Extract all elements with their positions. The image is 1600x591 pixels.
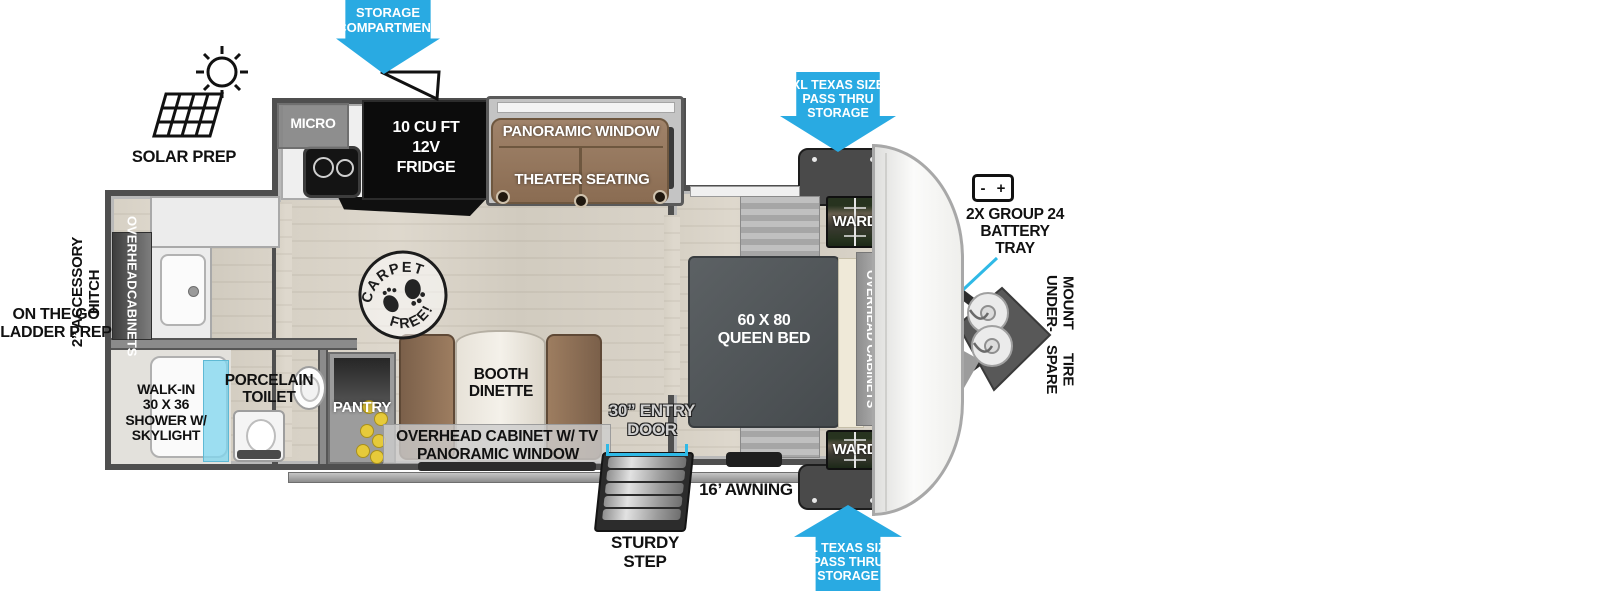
compartment-door-icon bbox=[378, 68, 442, 104]
pass-thru-top-label: XL TEXAS SIZE PASS THRU STORAGE bbox=[770, 78, 906, 120]
front-cap bbox=[872, 144, 964, 516]
ladder-line2: LADDER PREP bbox=[0, 324, 112, 342]
battery-line1: 2X GROUP 24 bbox=[952, 206, 1078, 223]
sink-faucet-icon bbox=[188, 286, 199, 297]
dinette-line1: BOOTH bbox=[448, 366, 554, 383]
fridge-label: 10 CU FT 12V FRIDGE bbox=[362, 118, 490, 178]
dinette-line2: DINETTE bbox=[448, 383, 554, 400]
sturdy-line1: STURDY bbox=[570, 534, 720, 553]
dinette-overhead-label: OVERHEAD CABINET W/ TV bbox=[380, 428, 614, 445]
pantry-can bbox=[370, 450, 384, 464]
spare-tire-line2: SPARE TIRE bbox=[1043, 340, 1076, 398]
step-tread bbox=[606, 470, 685, 481]
screw-icon bbox=[812, 157, 817, 162]
bath-vanity bbox=[233, 410, 285, 462]
entry-steps bbox=[594, 452, 694, 532]
spare-tire-line1: UNDER-MOUNT bbox=[1043, 266, 1076, 340]
battery-tray-label: 2X GROUP 24 BATTERY TRAY bbox=[952, 206, 1078, 257]
fridge-line1: 10 CU FT bbox=[362, 118, 490, 138]
spare-tire-label: UNDER-MOUNT SPARE TIRE bbox=[1036, 266, 1082, 398]
burner-icon bbox=[336, 159, 354, 177]
battery-icon: - + bbox=[972, 174, 1014, 202]
battery-minus: - bbox=[981, 180, 986, 197]
hitch-line2: HITCH bbox=[87, 192, 104, 392]
vanity-basin bbox=[246, 419, 276, 453]
entry-door-label: 30” ENTRY DOOR bbox=[598, 402, 706, 439]
sofa-cupholder-icon bbox=[574, 194, 588, 208]
step-tread bbox=[602, 509, 681, 520]
accessory-hitch-label: 2” ACCESSORY HITCH bbox=[70, 192, 103, 392]
sofa-cupholder-icon bbox=[653, 190, 667, 204]
floor-opening-bedroom bbox=[664, 215, 680, 395]
fridge-line2: 12V bbox=[362, 138, 490, 158]
panoramic-window-label: PANORAMIC WINDOW bbox=[490, 124, 672, 141]
rear-overhead-cabinets: OVERHEAD CABINETS bbox=[112, 232, 152, 340]
bedroom-bottom-window bbox=[726, 452, 782, 467]
rear-sink bbox=[160, 254, 206, 326]
battery-plus: + bbox=[997, 180, 1006, 197]
storage-line2: COMPARTMENT bbox=[330, 21, 446, 36]
hitch-line1: 2” ACCESSORY bbox=[70, 192, 87, 392]
shower-line1: WALK-IN bbox=[106, 382, 226, 397]
toilet-label: PORCELAIN TOILET bbox=[210, 372, 328, 406]
slide-top-window bbox=[497, 102, 675, 113]
pantry-can bbox=[356, 444, 370, 458]
pantry-label: PANTRY bbox=[326, 400, 398, 417]
bed-step-top bbox=[740, 196, 820, 260]
theater-seating-label: THEATER SEATING bbox=[498, 172, 666, 189]
step-tread bbox=[608, 457, 687, 468]
entry-line1: 30” ENTRY bbox=[598, 402, 706, 421]
queen-bed-label: 60 X 80 QUEEN BED bbox=[688, 312, 840, 347]
battery-line3: TRAY bbox=[952, 240, 1078, 257]
dinette-window-strip bbox=[418, 462, 596, 471]
ptb-line2: PASS THRU bbox=[780, 555, 916, 569]
rear-counter-top bbox=[150, 196, 280, 248]
sturdy-line2: STEP bbox=[570, 553, 720, 572]
pass-thru-bottom-label: XL TEXAS SIZE PASS THRU STORAGE bbox=[780, 541, 916, 583]
ladder-prep-label: ON THE GO LADDER PREP bbox=[0, 306, 112, 341]
storage-compartment-label: STORAGE COMPARTMENT bbox=[330, 6, 446, 35]
cap-seam bbox=[885, 153, 887, 511]
sofa-back-seam bbox=[499, 146, 663, 148]
rear-overhead-line1: OVERHEAD bbox=[125, 216, 140, 290]
solar-prep-icon bbox=[152, 38, 256, 148]
burner-icon bbox=[313, 157, 334, 178]
entry-door-dimension-line bbox=[606, 444, 688, 456]
sturdy-step-label: STURDY STEP bbox=[570, 534, 720, 571]
solar-prep-label: SOLAR PREP bbox=[116, 148, 252, 166]
pantry-can bbox=[360, 424, 374, 438]
shower-label: WALK-IN 30 X 36 SHOWER W/ SKYLIGHT bbox=[106, 382, 226, 444]
toilet-line2: TOILET bbox=[210, 389, 328, 406]
dinette-window-label: PANORAMIC WINDOW bbox=[398, 446, 598, 463]
ptb-line3: STORAGE bbox=[780, 569, 916, 583]
screw-icon bbox=[812, 498, 817, 503]
micro-label: MICRO bbox=[277, 116, 349, 131]
step-tread bbox=[603, 496, 682, 507]
battery-line2: BATTERY bbox=[952, 223, 1078, 240]
kitchen-cooktop bbox=[303, 146, 361, 198]
shower-line4: SKYLIGHT bbox=[106, 428, 226, 443]
ladder-line1: ON THE GO bbox=[0, 306, 112, 324]
storage-line1: STORAGE bbox=[330, 6, 446, 21]
fridge-line3: FRIDGE bbox=[362, 158, 490, 178]
ptt-line1: XL TEXAS SIZE bbox=[770, 78, 906, 92]
rear-overhead-line2: CABINETS bbox=[125, 290, 140, 356]
entry-line2: DOOR bbox=[598, 421, 706, 440]
ptt-line3: STORAGE bbox=[770, 106, 906, 120]
bed-line1: 60 X 80 bbox=[688, 312, 840, 330]
floorplan-diagram: OVERHEAD CABINETS WALK-IN 30 X 36 SHOWER… bbox=[0, 0, 1600, 591]
ptb-line1: XL TEXAS SIZE bbox=[780, 541, 916, 555]
shower-line3: SHOWER W/ bbox=[106, 413, 226, 428]
ptt-line2: PASS THRU bbox=[770, 92, 906, 106]
awning-label: 16’ AWNING bbox=[686, 481, 806, 500]
vanity-base bbox=[237, 450, 281, 459]
toilet-line1: PORCELAIN bbox=[210, 372, 328, 389]
bed-line2: QUEEN BED bbox=[688, 330, 840, 348]
shower-line2: 30 X 36 bbox=[106, 397, 226, 412]
sofa-cupholder-icon bbox=[496, 190, 510, 204]
step-tread bbox=[605, 483, 684, 494]
dinette-label: BOOTH DINETTE bbox=[448, 366, 554, 400]
